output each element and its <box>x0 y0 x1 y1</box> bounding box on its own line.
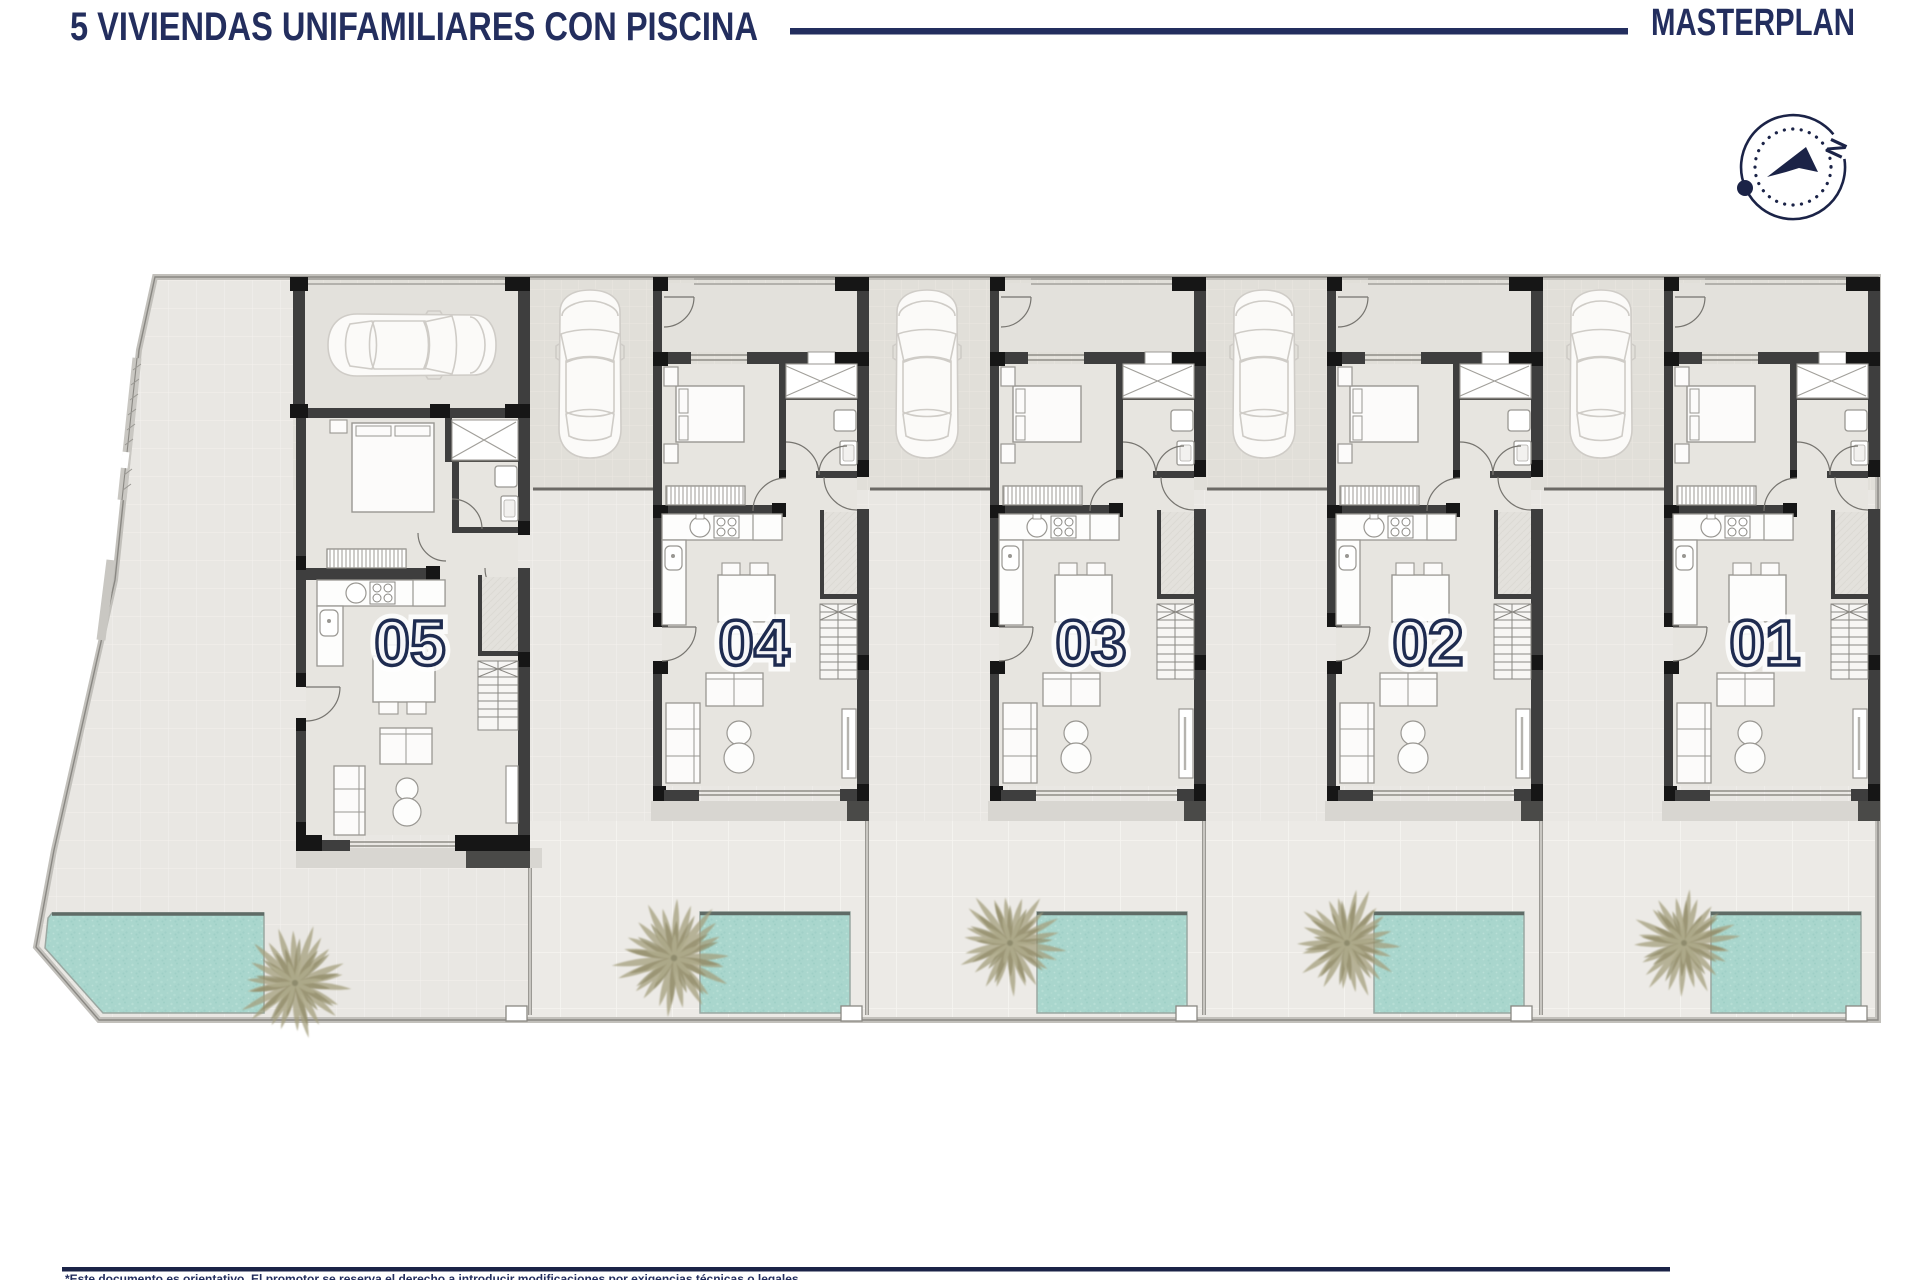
svg-text:MASTERPLAN: MASTERPLAN <box>1651 2 1855 44</box>
svg-text:01: 01 <box>1729 607 1800 679</box>
svg-text:02: 02 <box>1392 607 1463 679</box>
svg-text:5 VIVIENDAS UNIFAMILIARES CON: 5 VIVIENDAS UNIFAMILIARES CON PISCINA <box>70 5 758 49</box>
svg-text:03: 03 <box>1055 607 1126 679</box>
svg-text:*Este documento es orientativo: *Este documento es orientativo. El promo… <box>65 1272 799 1280</box>
svg-text:05: 05 <box>374 607 445 679</box>
svg-text:04: 04 <box>718 607 790 679</box>
